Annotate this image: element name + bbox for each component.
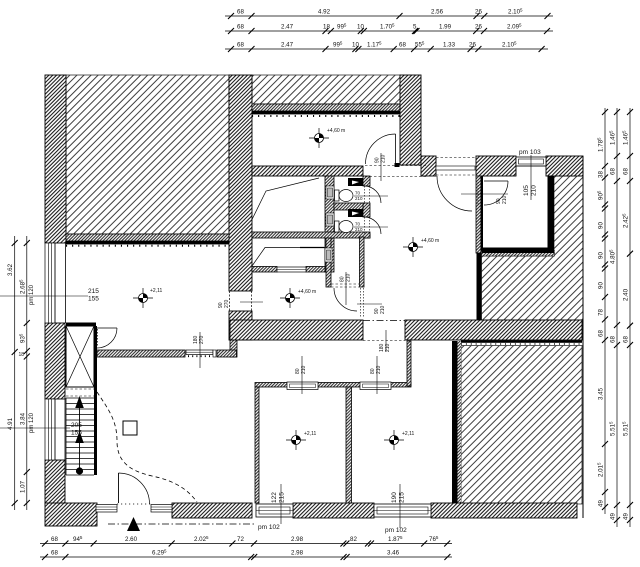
svg-text:5: 5 <box>413 24 417 31</box>
svg-text:3.45: 3.45 <box>598 387 605 400</box>
svg-text:68: 68 <box>237 9 244 16</box>
svg-text:122: 122 <box>271 492 278 503</box>
svg-text:2.47: 2.47 <box>281 24 294 31</box>
svg-text:3.46: 3.46 <box>387 550 400 557</box>
svg-text:68: 68 <box>399 42 406 49</box>
svg-text:18: 18 <box>19 352 25 358</box>
svg-text:+4,60 m: +4,60 m <box>298 289 316 295</box>
svg-text:190: 190 <box>391 492 398 503</box>
svg-text:2.47: 2.47 <box>281 42 294 49</box>
svg-text:3.62: 3.62 <box>7 263 14 276</box>
svg-text:205: 205 <box>71 422 82 429</box>
svg-text:49: 49 <box>610 513 617 520</box>
svg-text:105: 105 <box>523 185 530 196</box>
svg-text:215: 215 <box>399 492 406 503</box>
svg-text:2.56: 2.56 <box>431 9 444 16</box>
svg-text:78: 78 <box>598 309 605 316</box>
svg-text:210: 210 <box>385 343 391 352</box>
svg-text:49: 49 <box>623 513 630 520</box>
svg-text:18: 18 <box>323 24 330 31</box>
svg-text:90: 90 <box>598 252 605 259</box>
svg-text:1.99: 1.99 <box>439 24 452 31</box>
svg-text:+2,11: +2,11 <box>402 431 414 437</box>
svg-text:2.40: 2.40 <box>623 288 630 301</box>
svg-text:pm 102: pm 102 <box>258 524 280 531</box>
svg-text:215: 215 <box>279 492 286 503</box>
svg-text:pm 120: pm 120 <box>29 284 35 305</box>
svg-text:68: 68 <box>623 336 630 343</box>
svg-text:155: 155 <box>88 296 99 303</box>
svg-text:210: 210 <box>381 154 387 163</box>
svg-text:210: 210 <box>376 365 382 374</box>
svg-text:+4,60 m: +4,60 m <box>327 128 345 134</box>
svg-text:10: 10 <box>352 42 359 49</box>
svg-text:270: 270 <box>224 299 230 308</box>
svg-text:68: 68 <box>237 42 244 49</box>
svg-text:270: 270 <box>199 335 205 344</box>
svg-text:+2,11: +2,11 <box>150 288 162 294</box>
svg-text:155: 155 <box>71 430 82 437</box>
svg-text:72: 72 <box>237 536 244 543</box>
svg-text:210: 210 <box>346 273 352 282</box>
svg-text:pm 103: pm 103 <box>519 149 541 156</box>
svg-text:70: 70 <box>355 191 361 196</box>
svg-text:68: 68 <box>598 330 605 337</box>
svg-text:+2,11: +2,11 <box>304 431 316 437</box>
svg-text:+4,60 m: +4,60 m <box>421 238 439 244</box>
svg-text:68: 68 <box>610 336 617 343</box>
svg-text:210: 210 <box>531 185 538 196</box>
svg-text:68: 68 <box>51 536 58 543</box>
svg-text:215: 215 <box>88 288 99 295</box>
svg-text:26: 26 <box>469 42 476 49</box>
svg-text:68: 68 <box>623 168 630 175</box>
svg-text:10: 10 <box>357 24 364 31</box>
svg-text:70: 70 <box>355 222 361 227</box>
svg-text:4.91: 4.91 <box>7 417 14 430</box>
svg-text:2.60: 2.60 <box>125 536 138 543</box>
svg-text:pm 102: pm 102 <box>385 527 407 534</box>
svg-text:1.07: 1.07 <box>19 480 26 493</box>
svg-text:210: 210 <box>380 305 386 314</box>
svg-text:4.92: 4.92 <box>318 9 331 16</box>
svg-text:90: 90 <box>598 222 605 229</box>
svg-text:68: 68 <box>610 168 617 175</box>
svg-text:210: 210 <box>355 227 363 232</box>
svg-text:49: 49 <box>598 500 605 507</box>
svg-text:82: 82 <box>350 536 357 543</box>
svg-text:210: 210 <box>301 365 307 374</box>
svg-text:26: 26 <box>475 9 482 16</box>
svg-text:90: 90 <box>598 282 605 289</box>
svg-text:210: 210 <box>502 195 508 204</box>
svg-text:210: 210 <box>355 196 363 201</box>
svg-text:pm 120: pm 120 <box>29 412 35 433</box>
svg-text:2.98: 2.98 <box>291 550 304 557</box>
svg-text:1.33: 1.33 <box>443 42 456 49</box>
svg-text:2.98: 2.98 <box>291 536 304 543</box>
svg-text:38: 38 <box>598 171 605 178</box>
svg-text:3.84: 3.84 <box>19 412 26 425</box>
svg-text:26: 26 <box>475 24 482 31</box>
svg-text:68: 68 <box>237 24 244 31</box>
svg-text:68: 68 <box>51 550 58 557</box>
